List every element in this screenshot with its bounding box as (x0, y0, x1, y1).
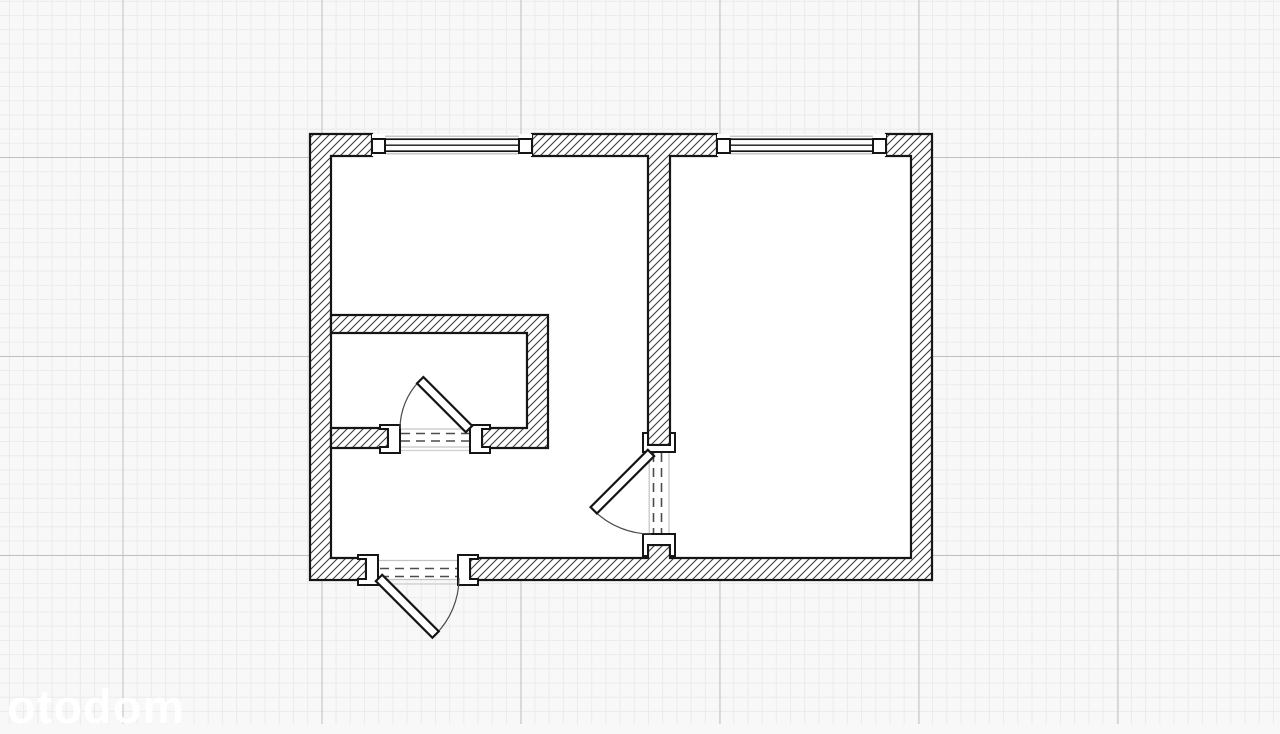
room-door-opening (648, 452, 670, 534)
window-2-jamb-left (717, 139, 730, 153)
window-2-jamb-right (873, 139, 886, 153)
floorplan-page: { "watermark": { "text": "otodom" }, "co… (0, 0, 1280, 724)
entrance-door-arc (436, 578, 460, 635)
bathroom-wall-left-stub (331, 428, 388, 448)
otodom-watermark: otodom (7, 679, 185, 734)
floorplan-drawing (0, 0, 1280, 724)
bathroom-door-opening (400, 428, 470, 448)
apartment-interior (331, 156, 911, 558)
window-1-jamb-left (372, 139, 385, 153)
window-1-jamb-right (519, 139, 532, 153)
